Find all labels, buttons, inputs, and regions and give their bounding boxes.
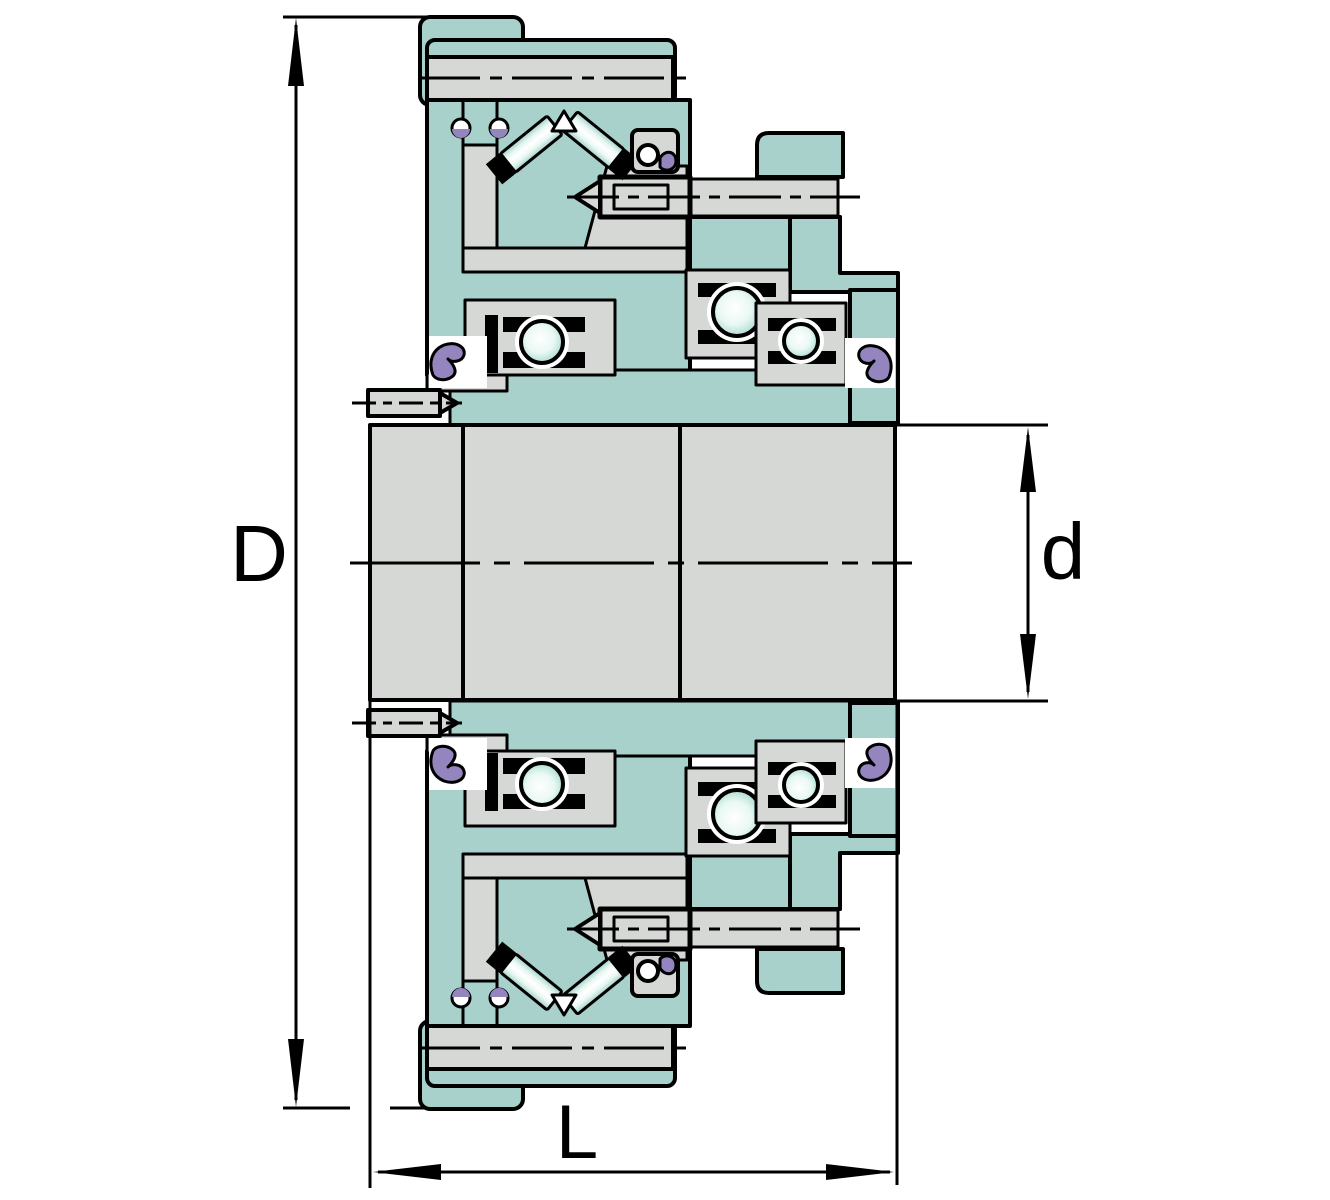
inner-ring-channel-horizontal: [463, 248, 687, 272]
flange-right: [757, 133, 843, 177]
arrowhead-down-icon: [288, 1039, 304, 1107]
arrowhead-up-icon: [288, 18, 304, 86]
technical-drawing: D d L: [0, 0, 1330, 1200]
cage-pin: [638, 145, 658, 165]
arrowhead-right-icon: [826, 1164, 894, 1180]
dimension-label-L: L: [556, 1090, 598, 1175]
arrowhead-down-icon: [1020, 634, 1036, 699]
cap-screw: [567, 177, 860, 217]
arrowhead-up-icon: [1020, 427, 1036, 492]
drawing-canvas: D d L: [0, 0, 1330, 1200]
assembly-upper-half: [352, 17, 898, 425]
assembly-lower-half: [352, 701, 898, 1109]
dimension-label-d: d: [1041, 507, 1086, 596]
cage-spring: [660, 152, 676, 170]
setscrew: [352, 390, 462, 416]
dimension-d: d: [893, 425, 1085, 701]
shaft: [350, 425, 912, 700]
housing-right-block: [790, 217, 898, 292]
bearing-ball: [713, 288, 761, 336]
bearing-ball: [784, 324, 818, 358]
dimension-label-D: D: [230, 509, 288, 598]
arrowhead-left-icon: [373, 1164, 441, 1180]
bearing-ball: [521, 321, 563, 363]
ball-bearing-right: [756, 303, 846, 385]
